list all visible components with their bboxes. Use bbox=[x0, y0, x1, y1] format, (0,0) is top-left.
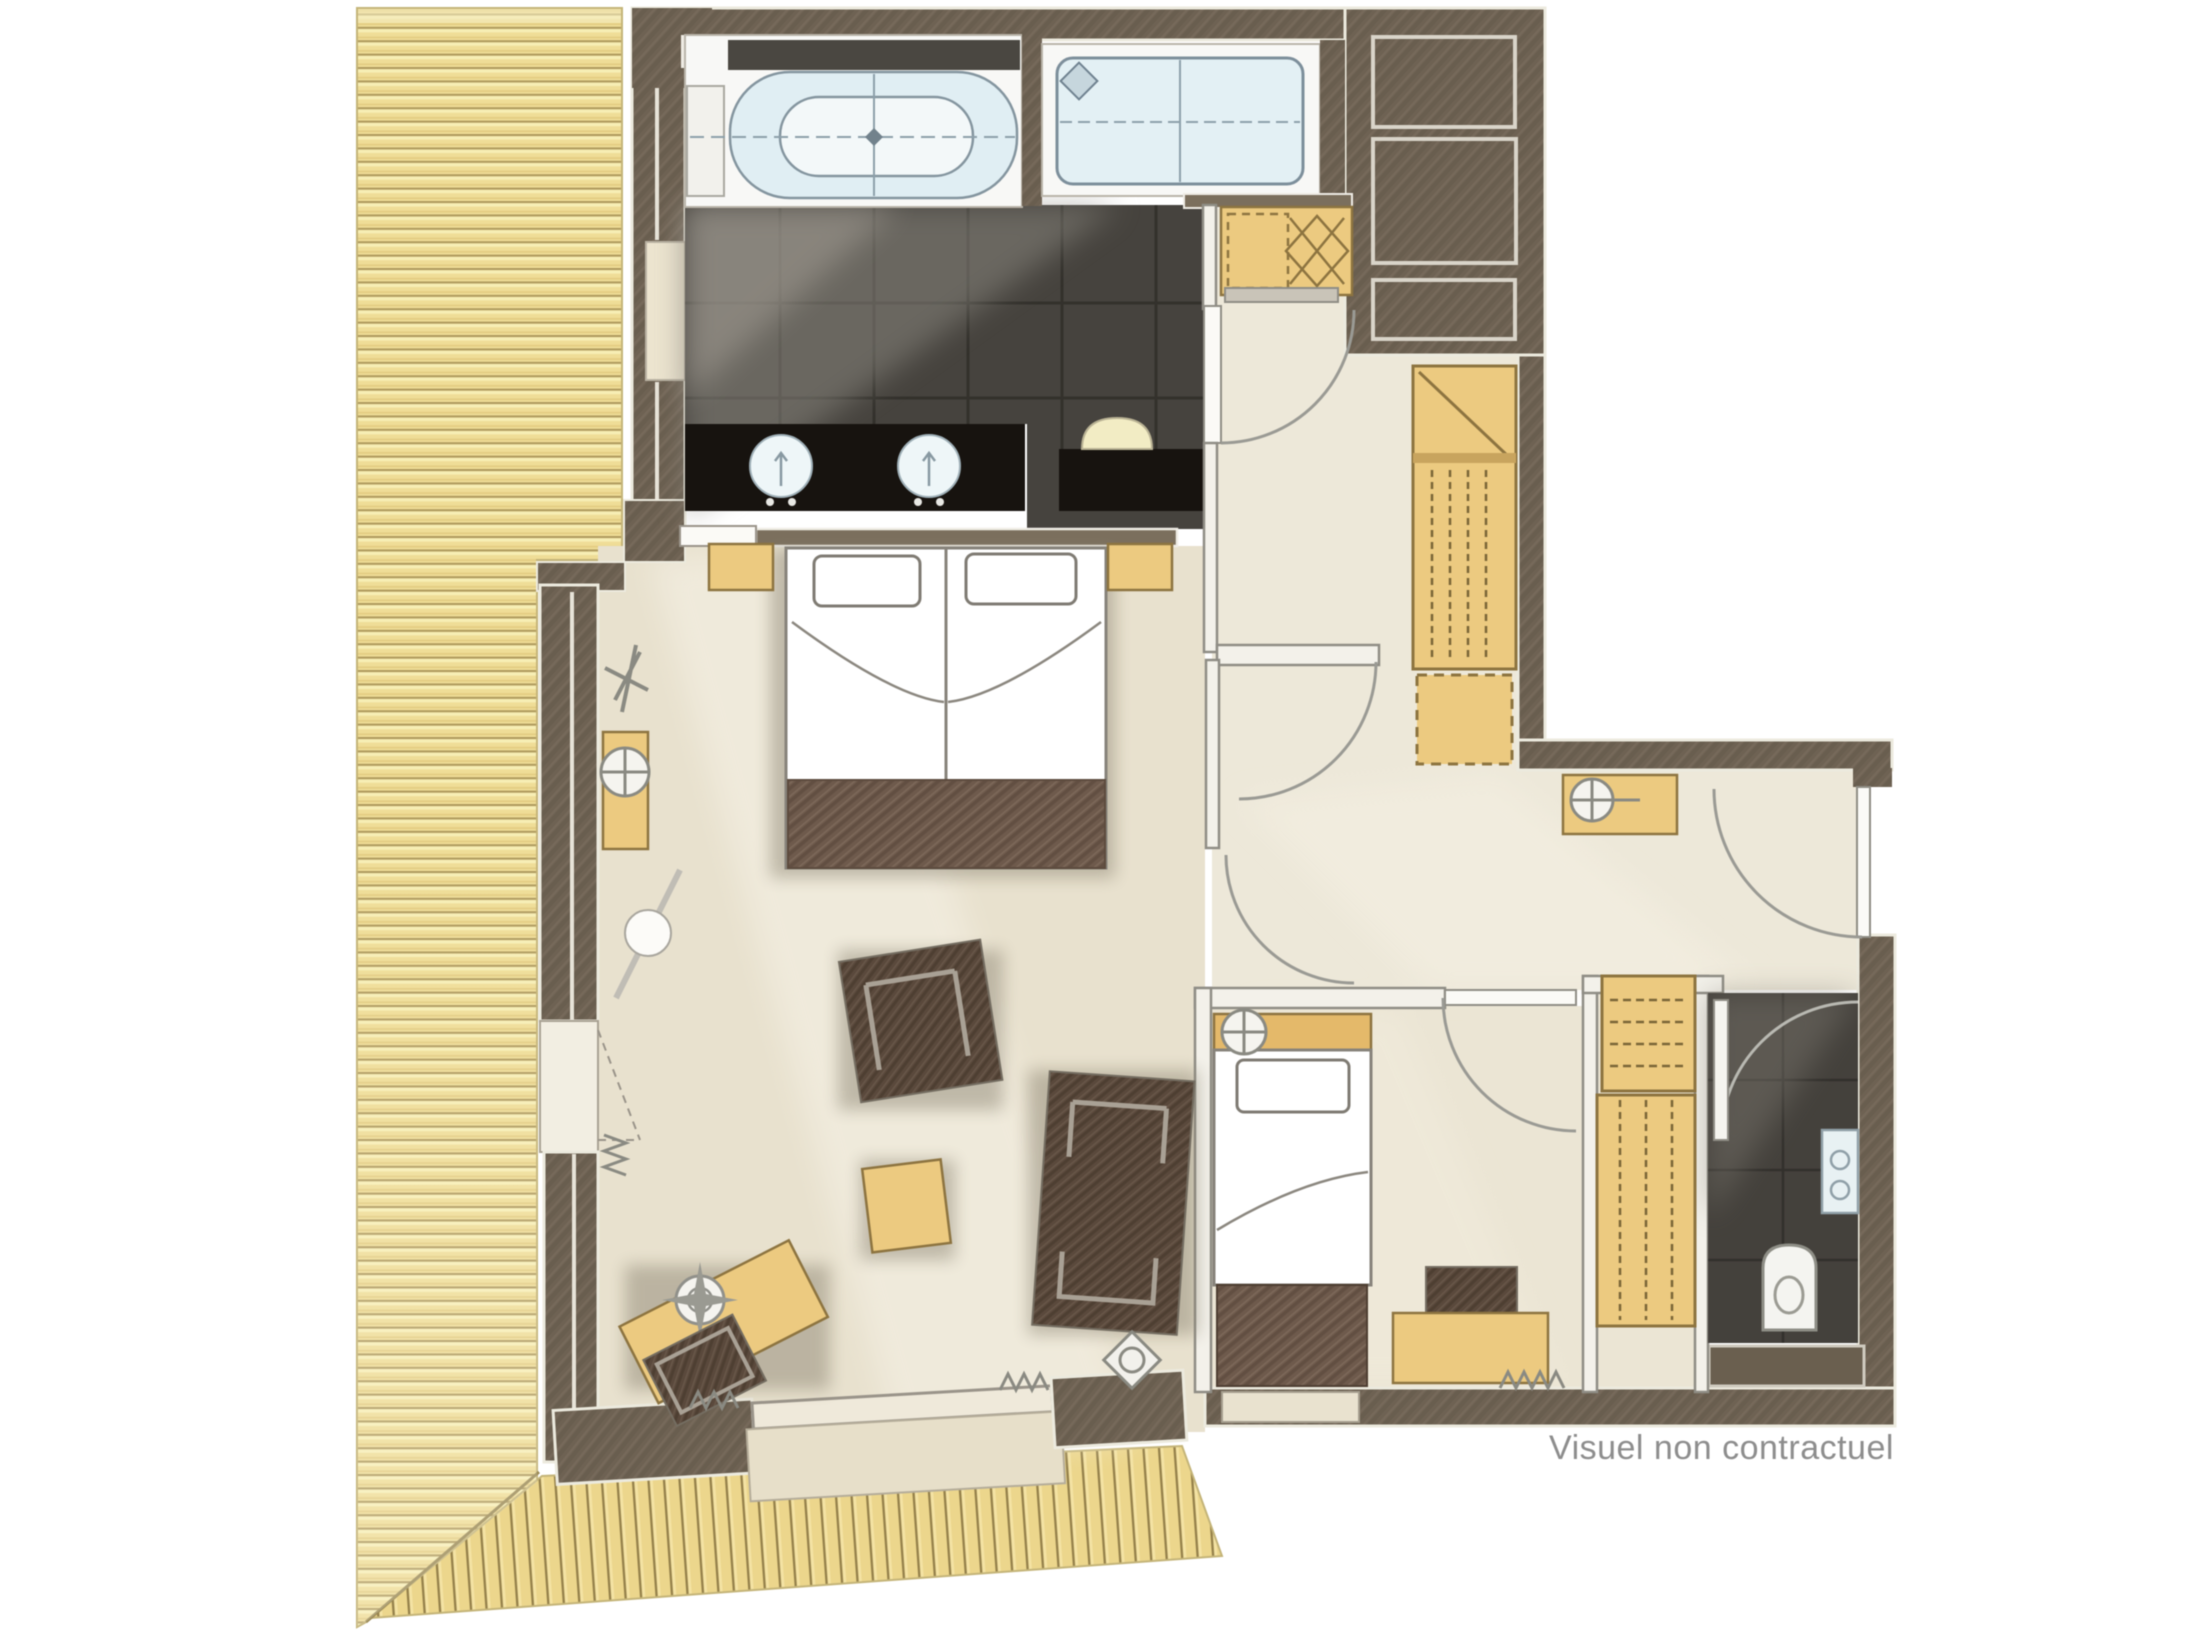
svg-text:Visuel non contractuel: Visuel non contractuel bbox=[1549, 1429, 1894, 1467]
